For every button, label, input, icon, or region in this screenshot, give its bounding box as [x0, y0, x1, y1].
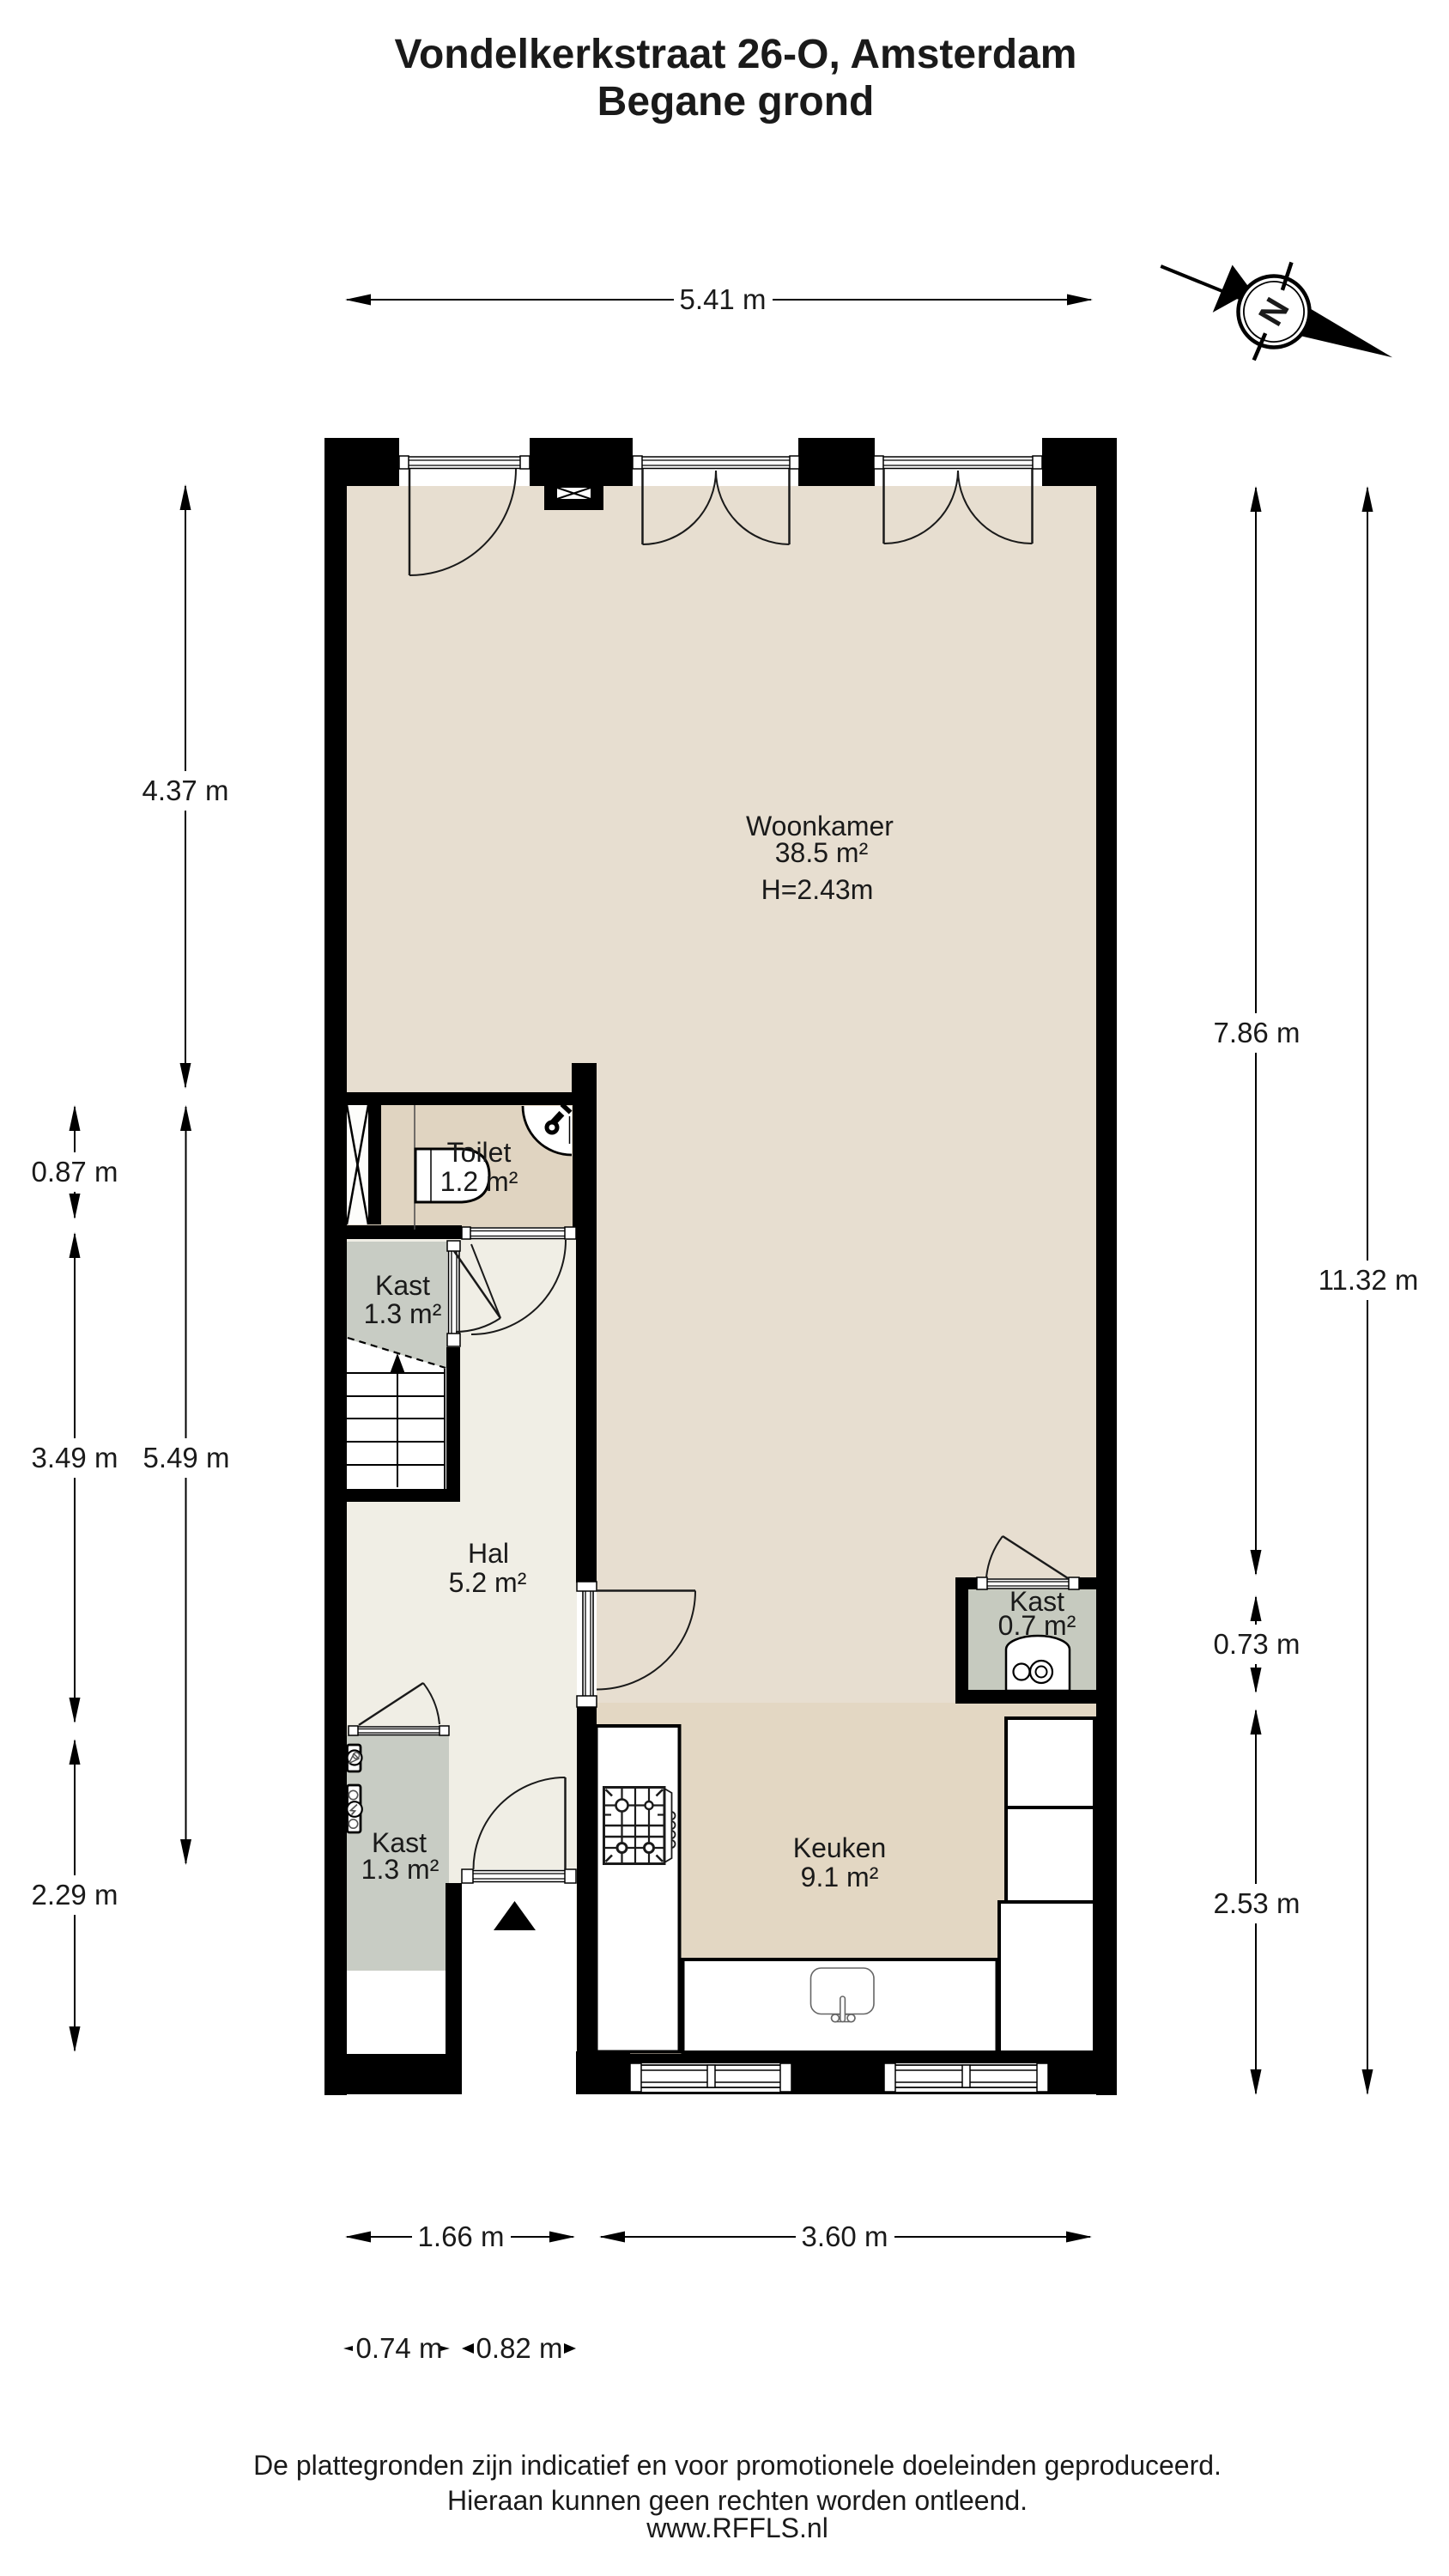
svg-text:Kast: Kast — [375, 1270, 430, 1301]
svg-text:0.82 m: 0.82 m — [476, 2332, 563, 2364]
svg-text:1.66 m: 1.66 m — [418, 2221, 505, 2252]
svg-text:11.32 m: 11.32 m — [1319, 1264, 1419, 1296]
svg-text:Hieraan kunnen geen rechten wo: Hieraan kunnen geen rechten worden ontle… — [447, 2485, 1028, 2516]
svg-text:Begane grond: Begane grond — [597, 79, 875, 125]
svg-text:Toilet: Toilet — [447, 1137, 512, 1168]
svg-text:2.29 m: 2.29 m — [32, 1879, 118, 1911]
svg-text:1.3 m²: 1.3 m² — [364, 1298, 442, 1329]
svg-text:38.5 m²: 38.5 m² — [775, 837, 869, 868]
svg-text:Vondelkerkstraat 26-O, Amsterd: Vondelkerkstraat 26-O, Amsterdam — [395, 32, 1077, 77]
svg-text:Keuken: Keuken — [793, 1832, 887, 1863]
svg-text:5.2 m²: 5.2 m² — [449, 1567, 527, 1598]
svg-text:De plattegronden zijn indicati: De plattegronden zijn indicatief en voor… — [253, 2450, 1222, 2481]
svg-text:5.49 m: 5.49 m — [143, 1442, 230, 1473]
svg-text:3.49 m: 3.49 m — [32, 1442, 118, 1473]
svg-text:5.41 m: 5.41 m — [680, 283, 767, 315]
svg-text:0.73 m: 0.73 m — [1214, 1628, 1300, 1660]
svg-text:2.53 m: 2.53 m — [1214, 1887, 1300, 1919]
svg-text:4.37 m: 4.37 m — [142, 775, 229, 806]
svg-text:Hal: Hal — [468, 1538, 509, 1569]
svg-text:0.74 m: 0.74 m — [356, 2332, 443, 2364]
svg-text:1.2 m²: 1.2 m² — [440, 1166, 518, 1197]
svg-text:1.3 m²: 1.3 m² — [361, 1854, 440, 1885]
svg-text:0.87 m: 0.87 m — [32, 1156, 118, 1188]
svg-text:www.RFFLS.nl: www.RFFLS.nl — [646, 2512, 828, 2543]
svg-text:9.1 m²: 9.1 m² — [801, 1862, 879, 1893]
svg-text:H=2.43m: H=2.43m — [761, 874, 874, 905]
svg-text:7.86 m: 7.86 m — [1214, 1017, 1300, 1048]
svg-text:3.60 m: 3.60 m — [802, 2221, 888, 2252]
svg-text:0.7 m²: 0.7 m² — [998, 1610, 1076, 1641]
